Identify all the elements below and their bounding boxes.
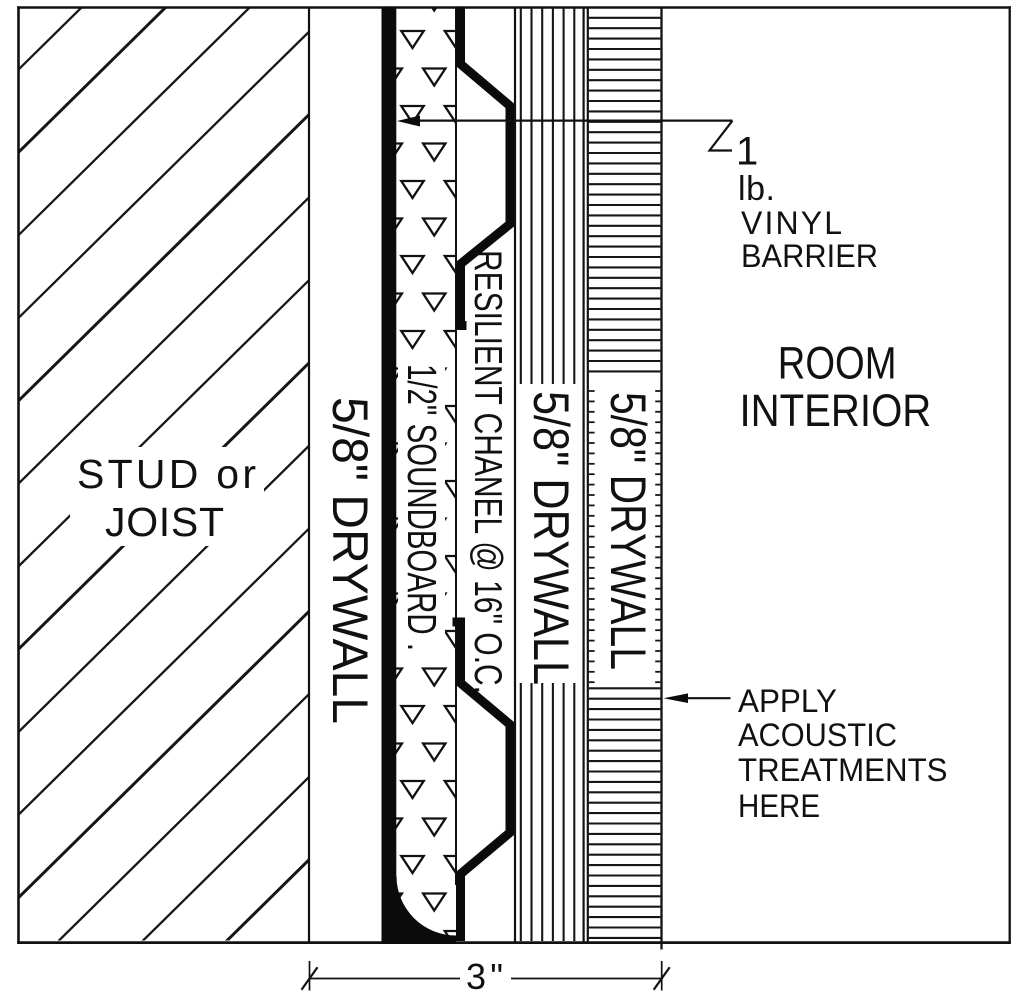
svg-text:lb.: lb.	[738, 170, 775, 208]
svg-text:TREATMENTS: TREATMENTS	[738, 752, 948, 788]
svg-text:5/8" DRYWALL: 5/8" DRYWALL	[523, 391, 579, 685]
svg-text:ROOM: ROOM	[778, 338, 897, 389]
svg-text:JOIST: JOIST	[105, 499, 224, 545]
svg-text:1: 1	[736, 129, 758, 173]
svg-text:APPLY: APPLY	[738, 683, 837, 719]
svg-text:1/2" SOUNDBOARD .: 1/2" SOUNDBOARD .	[399, 364, 445, 651]
svg-text:INTERIOR: INTERIOR	[740, 385, 932, 436]
svg-text:HERE: HERE	[738, 788, 820, 824]
svg-text:3": 3"	[466, 956, 503, 997]
svg-text:VINYL: VINYL	[741, 205, 842, 241]
svg-text:BARRIER: BARRIER	[741, 238, 878, 274]
svg-text:5/8" DRYWALL: 5/8" DRYWALL	[322, 397, 378, 724]
svg-text:5/8" DRYWALL: 5/8" DRYWALL	[600, 392, 656, 670]
svg-text:RESILIENT CHANEL @ 16" O.C.: RESILIENT CHANEL @ 16" O.C.	[466, 250, 509, 694]
svg-text:ACOUSTIC: ACOUSTIC	[738, 717, 897, 753]
